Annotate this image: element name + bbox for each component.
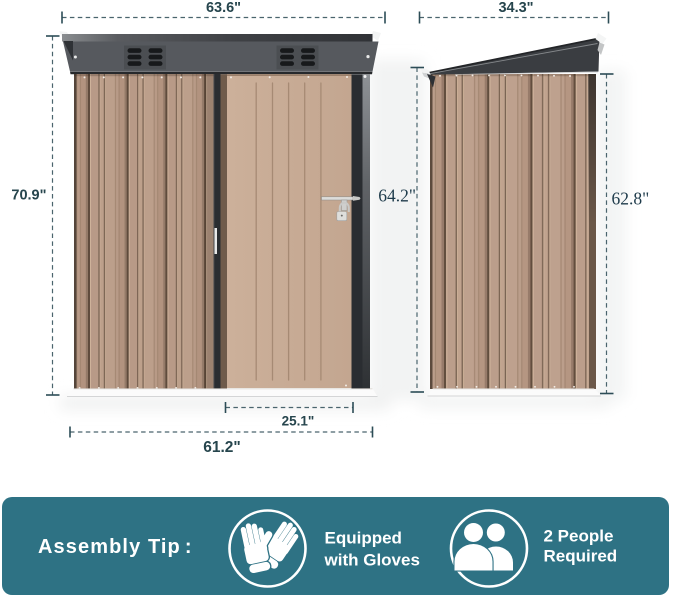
svg-text:63.6": 63.6" xyxy=(206,0,241,16)
svg-text:Assembly Tip:: Assembly Tip: xyxy=(38,536,193,558)
svg-text:62.8": 62.8" xyxy=(612,189,650,209)
svg-text:with Gloves: with Gloves xyxy=(324,551,420,570)
svg-text:25.1": 25.1" xyxy=(282,414,315,429)
svg-text:64.2": 64.2" xyxy=(378,186,416,206)
svg-text:70.9": 70.9" xyxy=(11,188,46,204)
svg-text:Equipped: Equipped xyxy=(325,529,402,548)
svg-text:61.2": 61.2" xyxy=(203,439,241,456)
svg-text:34.3": 34.3" xyxy=(498,0,533,16)
svg-text:2 People: 2 People xyxy=(544,527,614,546)
svg-text:Required: Required xyxy=(544,547,618,566)
